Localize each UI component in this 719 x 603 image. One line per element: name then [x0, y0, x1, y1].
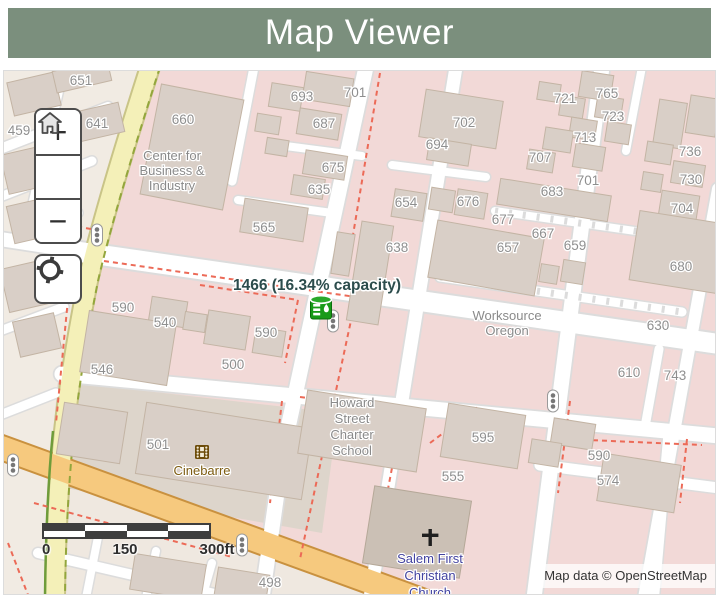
place-label-center-for-business-industry: Center forBusiness &Industry — [139, 148, 204, 193]
building-number: 680 — [670, 259, 693, 274]
building-number: 707 — [529, 150, 552, 165]
building-number: 687 — [313, 116, 336, 131]
map-attribution[interactable]: Map data © OpenStreetMap — [534, 564, 715, 588]
marker-capacity-label: 1466 (16.34% capacity) — [233, 277, 401, 294]
zoom-out-button[interactable]: − — [36, 198, 80, 242]
place-label-cinebarre: Cinebarre — [173, 463, 230, 478]
building-number: 565 — [253, 220, 276, 235]
building-number: 659 — [564, 238, 587, 253]
map-viewport[interactable]: 1466 (16.34% capacity) 65169370168766045… — [3, 70, 716, 595]
home-button[interactable] — [36, 154, 80, 198]
scale-tick-300: 300ft — [199, 541, 234, 558]
building-number: 590 — [588, 448, 611, 463]
zoom-control: + − — [34, 108, 82, 244]
building-number: 730 — [680, 172, 703, 187]
building-number: 693 — [291, 89, 314, 104]
building-number: 654 — [395, 195, 418, 210]
place-label-howard-street-charter-school: HowardStreetCharterSchool — [330, 395, 375, 458]
building-number: 702 — [453, 115, 476, 130]
building-number: 736 — [679, 144, 702, 159]
traffic-signal-icon — [548, 390, 559, 412]
building-number: 683 — [541, 184, 564, 199]
building-number: 743 — [664, 368, 687, 383]
building-number: 501 — [147, 437, 170, 452]
page-title: Map Viewer — [265, 13, 454, 53]
map-canvas[interactable]: 1466 (16.34% capacity) 65169370168766045… — [4, 71, 715, 594]
building-number: 675 — [322, 160, 345, 175]
scale-bar: 0 150 300ft — [42, 523, 222, 559]
building-number: 641 — [86, 116, 109, 131]
cinema-icon — [195, 445, 209, 459]
building-number: 713 — [574, 130, 597, 145]
building-number: 540 — [154, 315, 177, 330]
building-number: 660 — [172, 112, 195, 127]
locate-button[interactable] — [34, 254, 82, 304]
home-icon — [36, 110, 64, 136]
building-number: 723 — [602, 109, 625, 124]
traffic-signal-icon — [237, 534, 248, 556]
building-number: 459 — [8, 123, 31, 138]
building-number: 546 — [91, 362, 114, 377]
building-number: 676 — [457, 194, 480, 209]
building-number: 590 — [255, 325, 278, 340]
building-number: 701 — [577, 173, 600, 188]
building-number: 500 — [222, 357, 245, 372]
building-number: 610 — [618, 365, 641, 380]
building-number: 498 — [259, 575, 282, 590]
traffic-signal-icon — [8, 454, 19, 476]
building-number: 574 — [597, 473, 620, 488]
building-number: 721 — [554, 91, 577, 106]
building-number: 635 — [308, 182, 331, 197]
building-number: 638 — [386, 240, 409, 255]
scale-tick-150: 150 — [112, 541, 137, 558]
building-number: 590 — [112, 300, 135, 315]
traffic-signal-icon — [92, 224, 103, 246]
building-number: 667 — [532, 226, 555, 241]
building-number: 694 — [426, 137, 449, 152]
building-number: 630 — [647, 318, 670, 333]
building-number: 704 — [671, 201, 694, 216]
app-header: Map Viewer — [8, 8, 711, 58]
building-number: 765 — [596, 86, 619, 101]
water-tank-icon[interactable] — [311, 296, 332, 319]
scale-bar-strip — [42, 523, 211, 539]
building-number: 555 — [442, 469, 465, 484]
scale-tick-0: 0 — [42, 541, 50, 558]
building-number: 677 — [492, 212, 515, 227]
building-number: 657 — [497, 240, 520, 255]
building-number: 595 — [472, 430, 495, 445]
building-number: 651 — [70, 73, 93, 88]
building-number: 701 — [344, 85, 367, 100]
locate-icon — [36, 256, 64, 284]
